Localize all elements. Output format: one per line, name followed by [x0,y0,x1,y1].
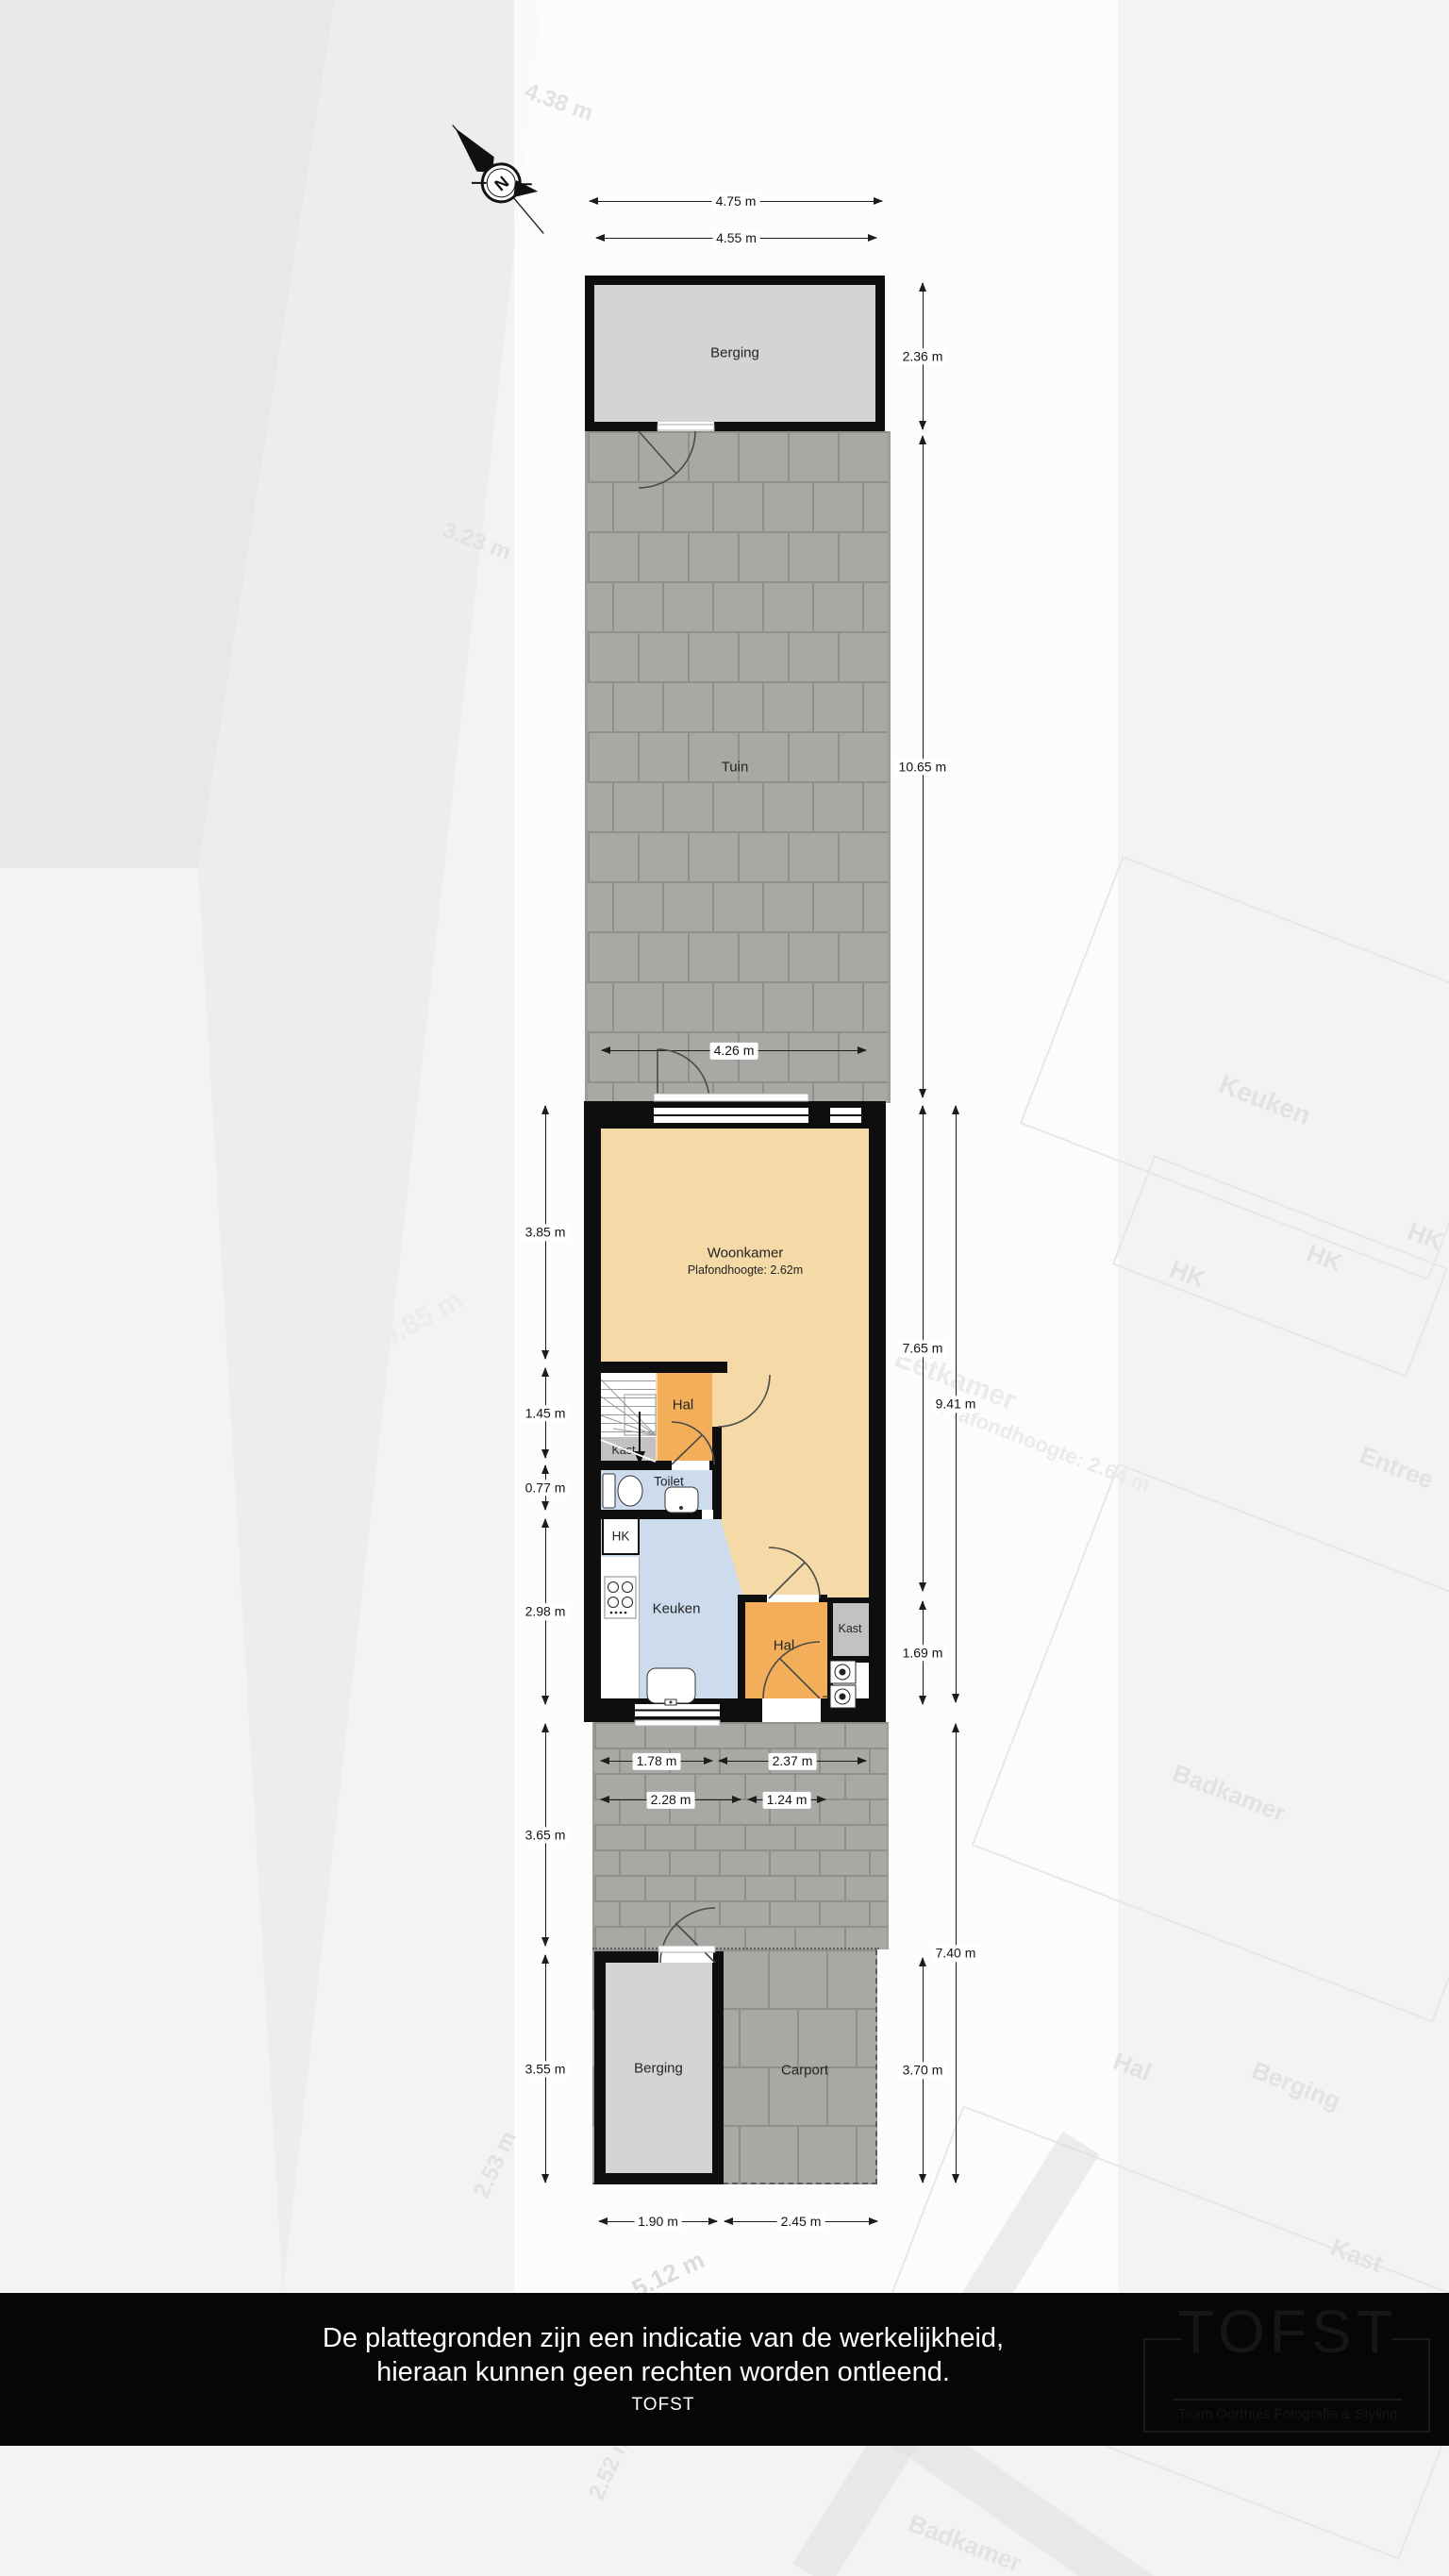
logo-tagline: Team Oorthuis Fotografie & Styling [1140,2406,1436,2422]
appliance-stack [823,1661,856,1708]
logo-rule [1174,2399,1402,2400]
disclaimer-text: De plattegronden zijn een indicatie van … [0,2293,1326,2446]
sills [635,425,808,1952]
stairs-fan [601,1380,656,1435]
cooktop [605,1577,636,1618]
logo-wordmark: TOFST [1140,2297,1436,2367]
disclaimer-line-2: hieraan kunnen geen rechten worden ontle… [376,2355,950,2389]
disclaimer-line-1: De plattegronden zijn een indicatie van … [323,2321,1004,2355]
kitchen-sink [647,1668,695,1705]
tofst-logo: TOFST Team Oorthuis Fotografie & Styling [1140,2306,1436,2436]
door-swing-arcs [639,431,820,1963]
plan-detail-overlay [0,0,1449,2576]
kast-under-stairs-line [601,1440,656,1462]
floorplan-page: 4.38 m 3.23 m 10.85 m Keuken HK HK HK Ee… [0,0,1449,2576]
toilet-fixtures [603,1474,698,1513]
footer-brand: TOFST [632,2392,695,2418]
